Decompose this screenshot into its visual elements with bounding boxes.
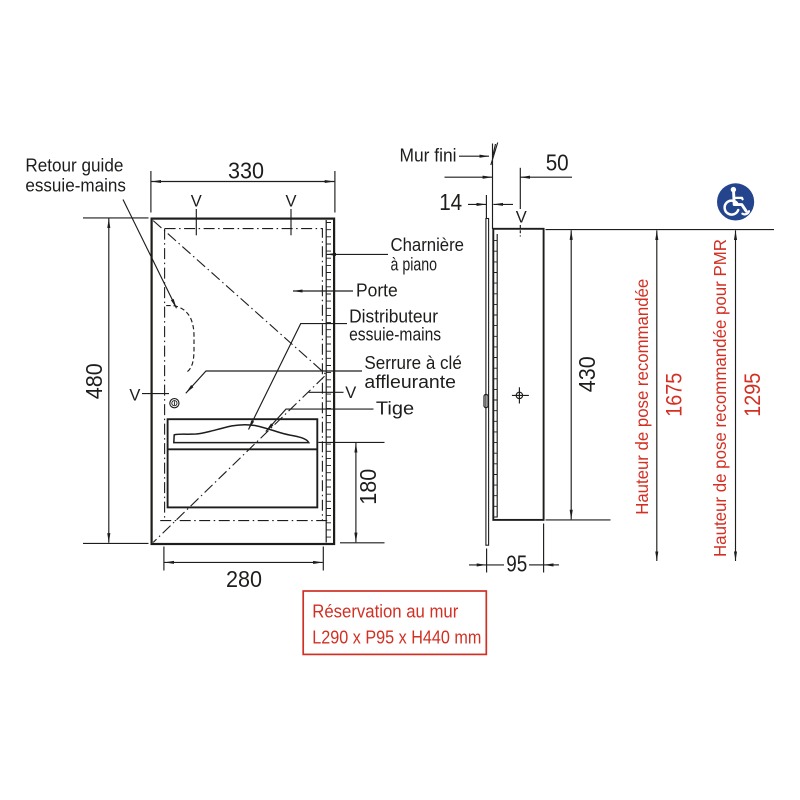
svg-text:Réservation au mur: Réservation au mur [312, 600, 458, 621]
svg-text:Charnière: Charnière [391, 234, 465, 255]
svg-text:14: 14 [439, 189, 462, 215]
svg-text:V: V [345, 384, 356, 402]
svg-text:essuie-mains: essuie-mains [349, 323, 441, 344]
svg-text:V: V [516, 209, 527, 227]
svg-text:Hauteur de pose recommandée po: Hauteur de pose recommandée pour PMR [710, 239, 730, 557]
svg-text:180: 180 [355, 469, 381, 505]
svg-text:essuie-mains: essuie-mains [25, 174, 126, 195]
svg-text:affleurante: affleurante [364, 371, 456, 392]
svg-text:95: 95 [506, 551, 527, 577]
svg-text:Porte: Porte [356, 279, 398, 300]
svg-text:280: 280 [226, 566, 262, 592]
svg-text:1295: 1295 [740, 373, 765, 417]
svg-text:V: V [129, 387, 140, 405]
svg-text:50: 50 [546, 150, 569, 176]
svg-text:480: 480 [81, 363, 107, 399]
svg-text:à piano: à piano [391, 254, 438, 275]
svg-text:330: 330 [228, 158, 264, 184]
svg-text:1675: 1675 [661, 373, 686, 417]
svg-text:V: V [191, 192, 202, 210]
svg-text:Serrure à clé: Serrure à clé [364, 352, 461, 373]
svg-text:V: V [285, 192, 296, 210]
svg-text:430: 430 [574, 356, 600, 392]
svg-text:Hauteur de pose recommandée: Hauteur de pose recommandée [632, 279, 652, 515]
svg-text:Retour guide: Retour guide [25, 154, 123, 175]
svg-text:L290 x P95 x H440 mm: L290 x P95 x H440 mm [312, 626, 481, 647]
svg-text:Tige: Tige [376, 397, 414, 418]
svg-text:Mur fini: Mur fini [400, 145, 457, 166]
